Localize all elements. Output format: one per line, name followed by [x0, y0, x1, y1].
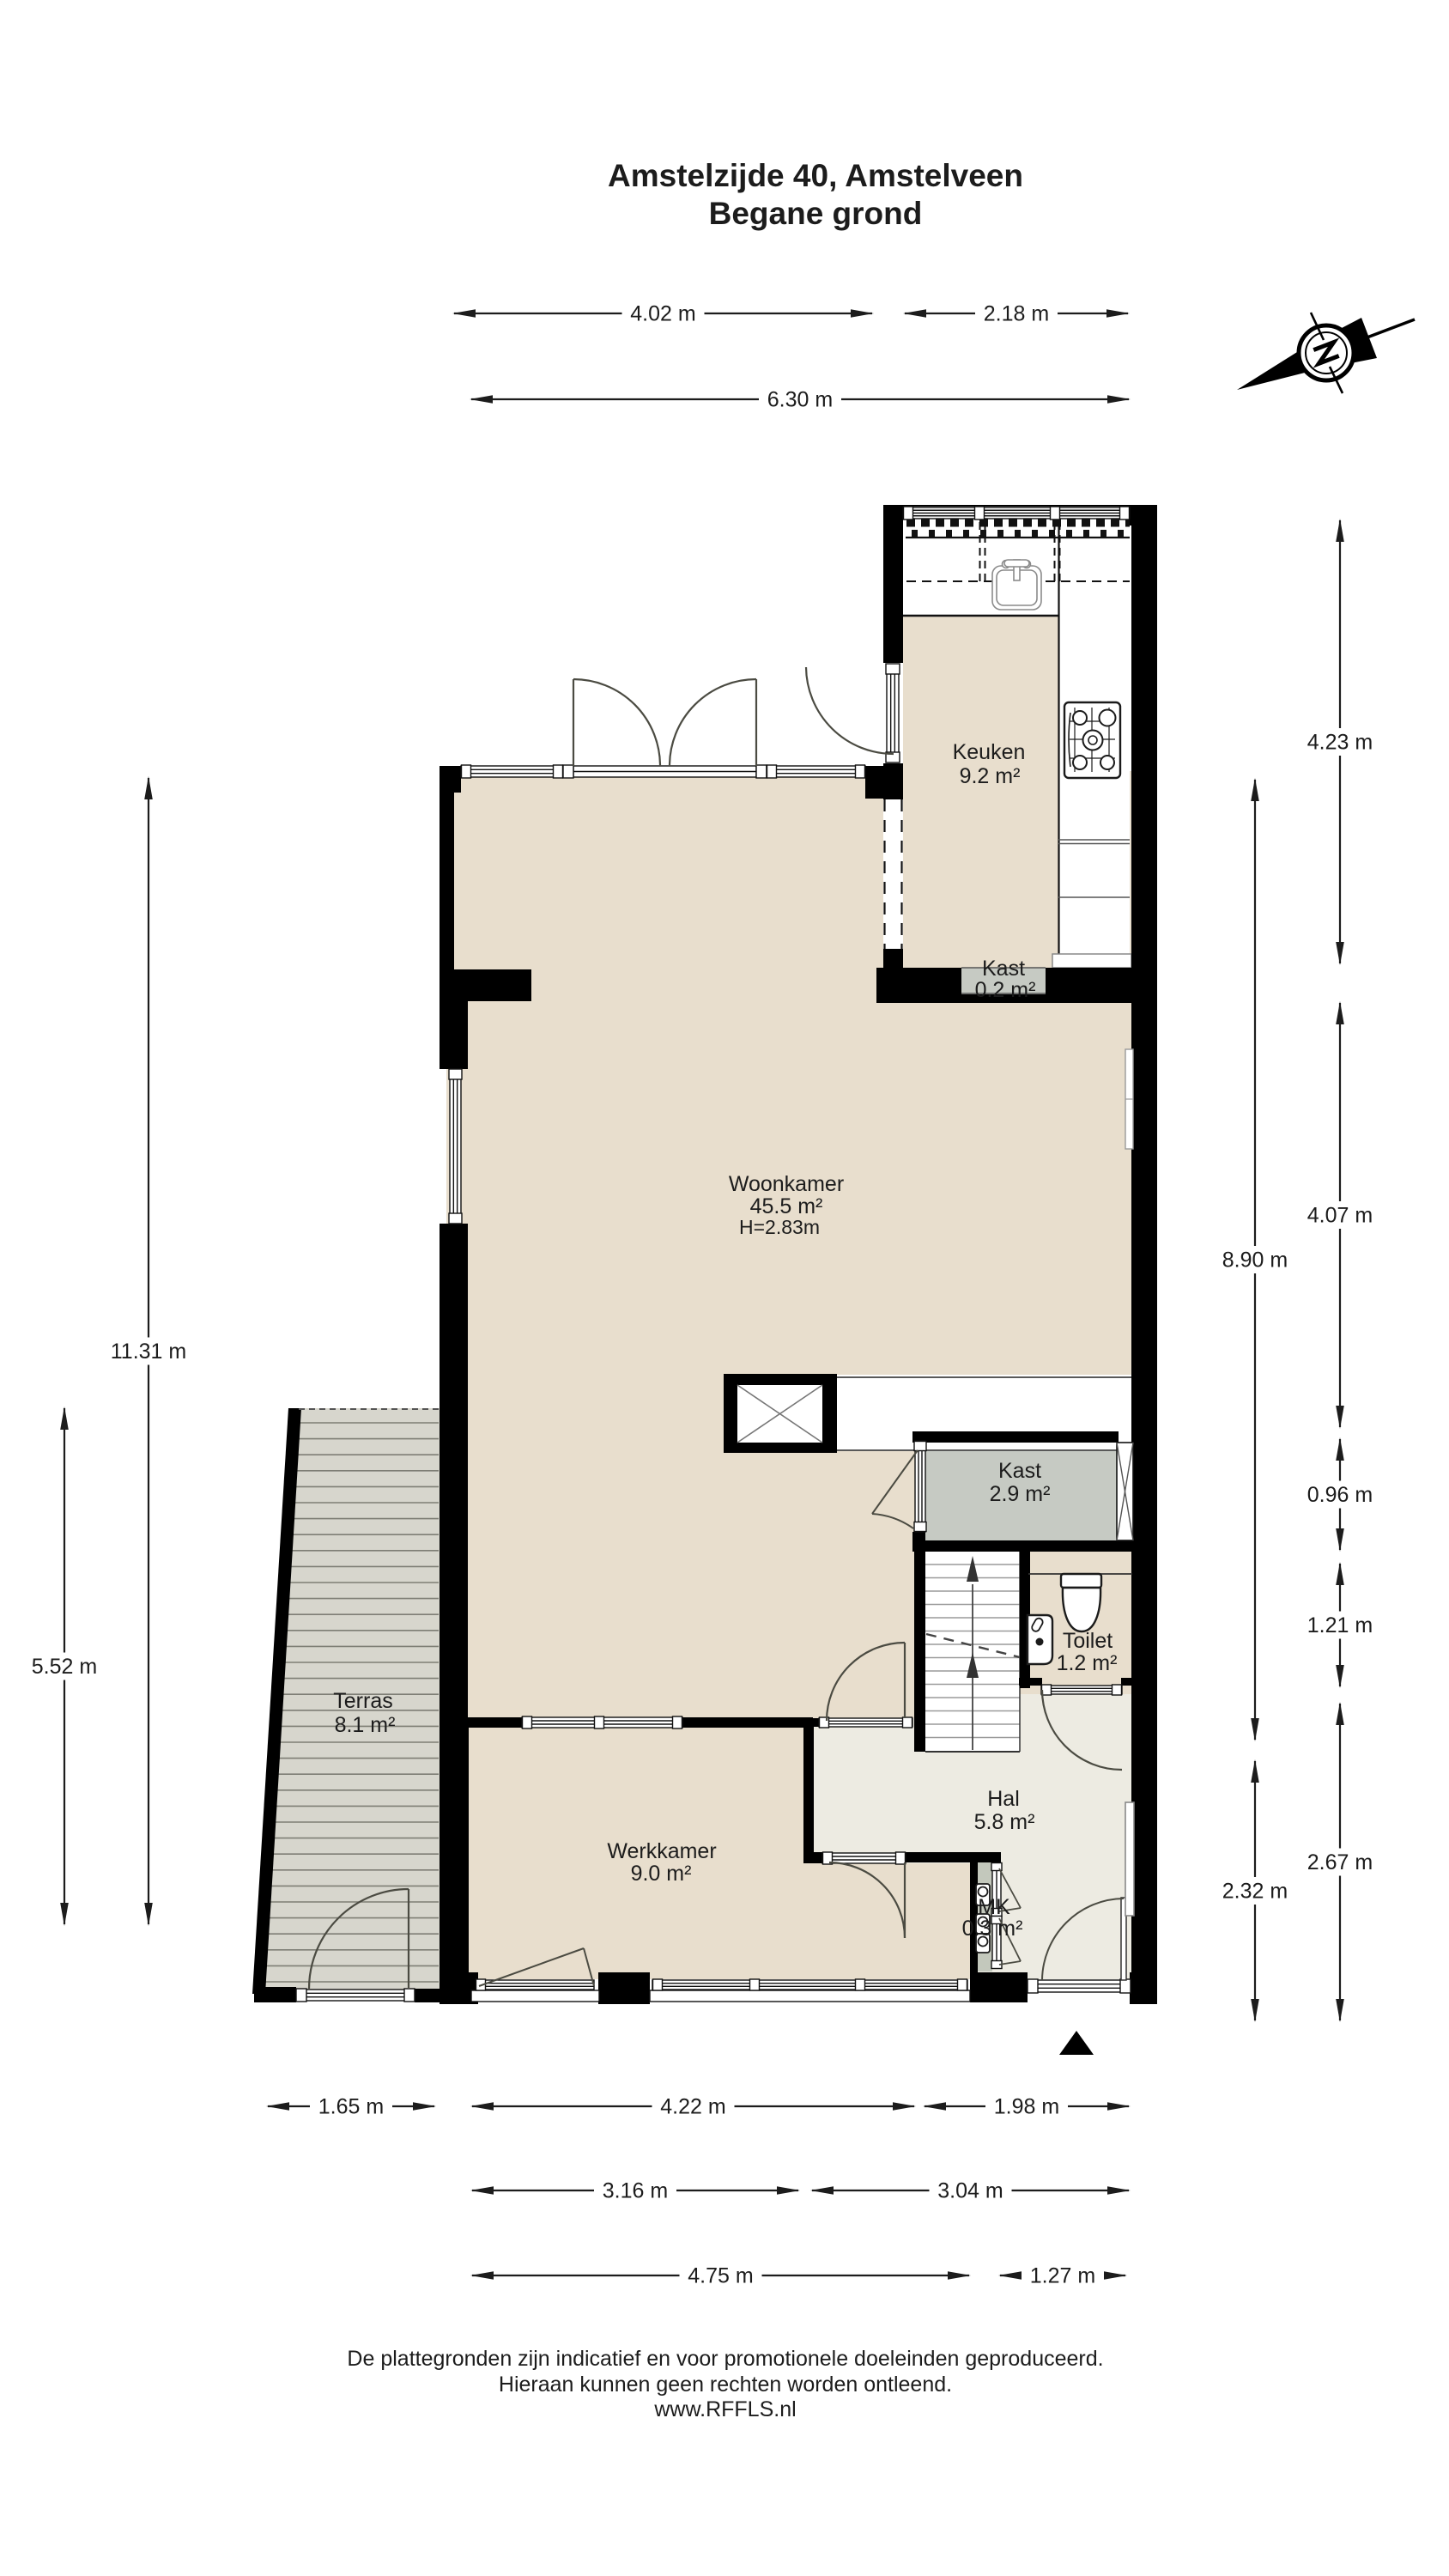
svg-text:Amstelzijde 40, Amstelveen: Amstelzijde 40, Amstelveen	[608, 158, 1023, 193]
svg-text:De plattegronden zijn indicati: De plattegronden zijn indicatief en voor…	[347, 2347, 1103, 2371]
svg-text:1.21 m: 1.21 m	[1307, 1613, 1373, 1637]
svg-text:Kast: Kast	[998, 1459, 1041, 1483]
svg-text:Woonkamer: Woonkamer	[729, 1172, 844, 1196]
svg-text:4.23 m: 4.23 m	[1307, 731, 1373, 755]
svg-text:MK: MK	[978, 1895, 1010, 1919]
svg-text:9.2 m²: 9.2 m²	[960, 764, 1021, 788]
svg-text:Hieraan kunnen geen rechten wo: Hieraan kunnen geen rechten worden ontle…	[499, 2372, 952, 2397]
svg-text:0.2 m²: 0.2 m²	[975, 978, 1036, 1002]
svg-text:Keuken: Keuken	[953, 740, 1026, 764]
svg-text:8.1 m²: 8.1 m²	[335, 1713, 396, 1737]
svg-text:Toilet: Toilet	[1063, 1629, 1113, 1653]
svg-text:11.31 m: 11.31 m	[111, 1340, 186, 1364]
svg-text:4.07 m: 4.07 m	[1307, 1204, 1373, 1228]
svg-text:6.30 m: 6.30 m	[767, 388, 833, 412]
svg-text:2.18 m: 2.18 m	[984, 302, 1049, 326]
svg-text:2.32 m: 2.32 m	[1222, 1880, 1288, 1904]
svg-text:2.67 m: 2.67 m	[1307, 1850, 1373, 1874]
svg-text:4.22 m: 4.22 m	[660, 2095, 725, 2119]
svg-text:4.02 m: 4.02 m	[630, 302, 695, 326]
svg-text:1.65 m: 1.65 m	[318, 2095, 384, 2119]
svg-text:0.3 m²: 0.3 m²	[962, 1917, 1023, 1941]
svg-text:Begane grond: Begane grond	[709, 196, 923, 231]
svg-text:9.0 m²: 9.0 m²	[631, 1862, 692, 1886]
svg-text:Kast: Kast	[982, 957, 1025, 981]
svg-text:3.16 m: 3.16 m	[603, 2179, 668, 2203]
svg-text:www.RFFLS.nl: www.RFFLS.nl	[653, 2397, 796, 2421]
svg-text:4.75 m: 4.75 m	[688, 2264, 753, 2288]
svg-text:5.52 m: 5.52 m	[32, 1655, 97, 1679]
svg-text:0.96 m: 0.96 m	[1307, 1483, 1373, 1507]
svg-text:1.2 m²: 1.2 m²	[1057, 1651, 1118, 1675]
svg-text:H=2.83m: H=2.83m	[739, 1216, 820, 1238]
svg-text:Terras: Terras	[333, 1689, 392, 1713]
svg-text:3.04 m: 3.04 m	[937, 2179, 1003, 2203]
svg-text:Hal: Hal	[987, 1787, 1020, 1811]
svg-text:45.5 m²: 45.5 m²	[750, 1194, 823, 1218]
svg-text:8.90 m: 8.90 m	[1222, 1249, 1288, 1273]
svg-text:5.8 m²: 5.8 m²	[974, 1810, 1035, 1834]
svg-text:1.27 m: 1.27 m	[1030, 2264, 1095, 2288]
svg-text:1.98 m: 1.98 m	[994, 2095, 1059, 2119]
svg-text:Werkkamer: Werkkamer	[607, 1839, 716, 1863]
svg-text:2.9 m²: 2.9 m²	[990, 1482, 1051, 1506]
